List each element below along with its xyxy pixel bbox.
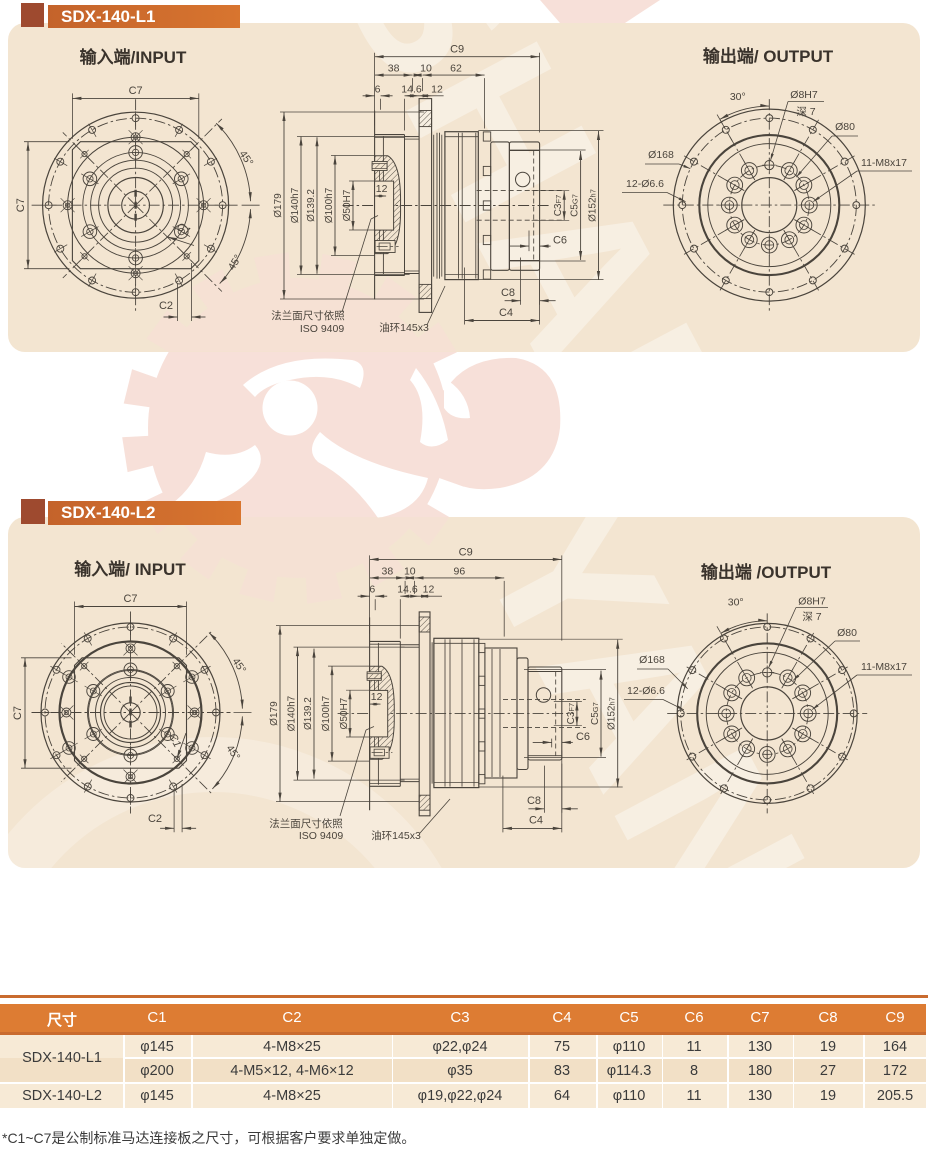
svg-text:油环145x3: 油环145x3 (379, 321, 429, 334)
svg-text:38: 38 (382, 565, 394, 577)
svg-text:C7: C7 (123, 593, 137, 605)
svg-text:45°: 45° (237, 149, 256, 169)
svg-text:12-Ø6.6: 12-Ø6.6 (626, 178, 664, 190)
svg-text:12: 12 (431, 83, 443, 95)
svg-text:C2: C2 (159, 300, 173, 312)
svg-text:C8: C8 (501, 287, 515, 299)
svg-text:Ø179: Ø179 (273, 193, 284, 218)
svg-text:Ø152h7: Ø152h7 (607, 697, 618, 730)
svg-text:10: 10 (404, 565, 416, 577)
svg-text:11-M8x17: 11-M8x17 (861, 157, 907, 169)
svg-text:C6: C6 (576, 731, 590, 743)
svg-text:法兰面尺寸依照: 法兰面尺寸依照 (271, 309, 345, 322)
svg-text:6: 6 (375, 83, 381, 95)
svg-text:Ø100h7: Ø100h7 (324, 187, 335, 223)
svg-text:30°: 30° (730, 91, 746, 103)
svg-text:62: 62 (450, 63, 462, 75)
svg-text:输入端/INPUT: 输入端/INPUT (80, 47, 187, 67)
svg-text:C2: C2 (148, 813, 162, 825)
svg-text:深 7: 深 7 (796, 106, 815, 118)
svg-text:Ø179: Ø179 (269, 701, 280, 726)
svg-text:输入端/ INPUT: 输入端/ INPUT (74, 559, 186, 579)
svg-text:Ø168: Ø168 (648, 149, 674, 161)
svg-text:输出端/ OUTPUT: 输出端/ OUTPUT (703, 46, 834, 66)
svg-text:Ø8H7: Ø8H7 (790, 89, 818, 101)
svg-text:Ø139.2: Ø139.2 (303, 697, 314, 730)
svg-text:C5G7: C5G7 (570, 194, 581, 217)
svg-text:法兰面尺寸依照: 法兰面尺寸依照 (269, 817, 343, 830)
svg-text:C7: C7 (129, 85, 143, 97)
svg-text:油环145x3: 油环145x3 (371, 829, 421, 842)
svg-text:Ø152h7: Ø152h7 (588, 189, 599, 222)
svg-text:12: 12 (423, 584, 435, 596)
svg-text:深 7: 深 7 (802, 611, 821, 623)
svg-text:Ø139.2: Ø139.2 (306, 189, 317, 222)
svg-text:Ø140h7: Ø140h7 (290, 187, 301, 223)
svg-text:10: 10 (420, 63, 432, 75)
svg-text:C7: C7 (12, 706, 24, 720)
svg-text:Ø8H7: Ø8H7 (798, 596, 826, 608)
svg-text:C7: C7 (15, 198, 27, 212)
svg-text:Ø100h7: Ø100h7 (321, 695, 332, 731)
svg-text:ISO 9409: ISO 9409 (300, 323, 345, 335)
svg-text:Ø80: Ø80 (835, 121, 855, 133)
svg-text:Ø80: Ø80 (837, 627, 857, 639)
svg-text:45°: 45° (226, 253, 245, 273)
svg-text:12: 12 (376, 183, 388, 195)
svg-text:45°: 45° (229, 656, 248, 676)
svg-text:12: 12 (371, 691, 383, 703)
svg-text:C6: C6 (553, 235, 567, 247)
svg-text:C3F7: C3F7 (553, 195, 564, 217)
svg-text:96: 96 (454, 565, 466, 577)
svg-text:Ø140h7: Ø140h7 (287, 695, 298, 731)
svg-text:Ø50H7: Ø50H7 (342, 189, 353, 221)
svg-text:14.6: 14.6 (401, 83, 422, 95)
svg-text:6: 6 (369, 584, 375, 596)
svg-text:30°: 30° (728, 596, 744, 608)
svg-text:C4: C4 (499, 307, 513, 319)
svg-text:14.6: 14.6 (397, 584, 418, 596)
svg-text:ISO 9409: ISO 9409 (299, 830, 344, 842)
svg-text:38: 38 (388, 63, 400, 75)
svg-text:Ø168: Ø168 (639, 654, 665, 666)
svg-text:C9: C9 (459, 546, 473, 558)
svg-text:C4: C4 (529, 815, 543, 827)
svg-text:C8: C8 (527, 795, 541, 807)
svg-text:C3F7: C3F7 (566, 703, 577, 725)
svg-text:12-Ø6.6: 12-Ø6.6 (627, 685, 665, 697)
svg-text:C5G7: C5G7 (590, 702, 601, 725)
svg-text:输出端 /OUTPUT: 输出端 /OUTPUT (701, 562, 832, 582)
svg-text:C9: C9 (450, 44, 464, 56)
svg-text:Ø50H7: Ø50H7 (339, 697, 350, 729)
svg-text:45°: 45° (223, 743, 242, 763)
svg-text:11-M8x17: 11-M8x17 (861, 661, 907, 673)
